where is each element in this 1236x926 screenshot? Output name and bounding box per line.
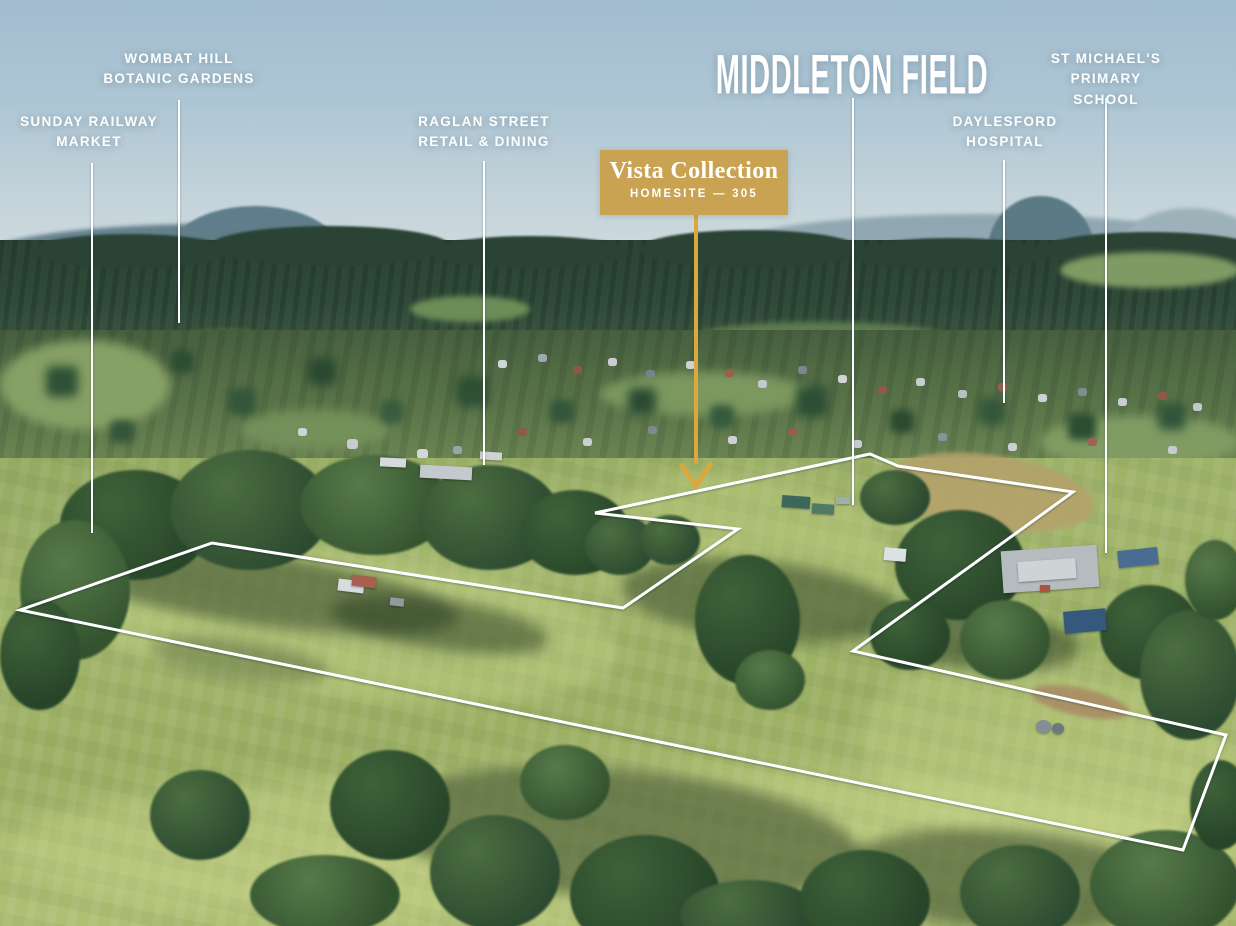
homestead <box>782 495 811 509</box>
callout-homesite-number: HOMESITE — 305 <box>600 188 788 200</box>
landmark-label-wombat-hill-botanic-gardens: WOMBAT HILL BOTANIC GARDENS <box>103 49 254 90</box>
water-tank <box>1036 720 1051 733</box>
callout-title: Vista Collection <box>600 158 788 185</box>
page-title: MIDDLETON FIELD <box>716 42 988 107</box>
landmark-label-st-michaels-primary-school: ST MICHAEL'S PRIMARY SCHOOL <box>1041 49 1171 110</box>
vista-collection-callout: Vista Collection HOMESITE — 305 <box>600 150 788 215</box>
landmark-label-sunday-railway-market: SUNDAY RAILWAY MARKET <box>20 112 158 153</box>
aerial-site-map: MIDDLETON FIELD SUNDAY RAILWAY MARKET WO… <box>0 0 1236 926</box>
landmark-label-daylesford-hospital: DAYLESFORD HOSPITAL <box>953 112 1058 153</box>
township-houses <box>0 0 5 4</box>
landmark-label-raglan-street-retail-dining: RAGLAN STREET RETAIL & DINING <box>418 112 550 153</box>
